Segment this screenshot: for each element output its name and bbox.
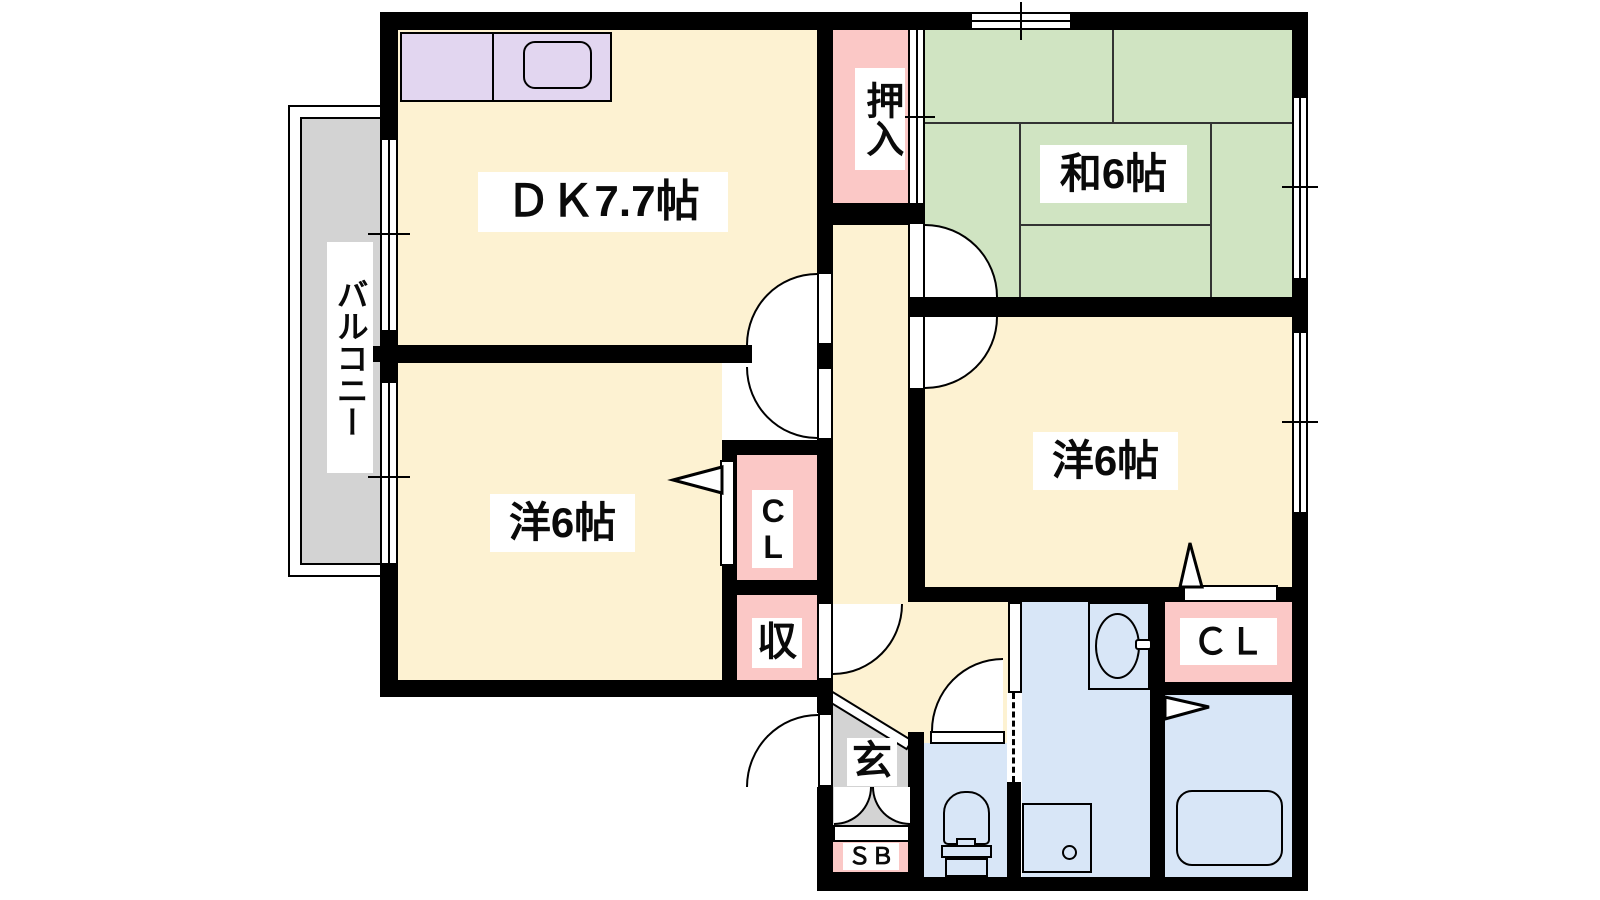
label-shoebox: ＳＢ	[843, 843, 899, 870]
label-cl-right: ＣＬ	[1180, 618, 1277, 665]
wall-miter	[1290, 877, 1308, 891]
label-balcony: バルコニー	[327, 242, 373, 473]
toilet-icon	[943, 791, 990, 845]
floor-plan: ＤＫ7.7帖 和6帖 洋6帖 洋6帖 押入 バルコニー CL 収 ＣＬ 玄 ＳＢ	[0, 0, 1600, 900]
closet-door-triangle	[1180, 543, 1202, 587]
bath-door-triangle	[1165, 697, 1209, 719]
room-label-youshitsu-right: 洋6帖	[1033, 432, 1178, 490]
kitchen-sink-icon	[523, 41, 592, 89]
vanity-basin-icon	[1095, 613, 1140, 679]
toilet-notch-icon	[956, 838, 976, 847]
closet-door-triangle	[673, 467, 722, 493]
wall-miter	[380, 12, 398, 30]
label-oshiire: 押入	[855, 68, 905, 170]
label-cl-left: CL	[752, 490, 793, 568]
washer-pan-icon	[1022, 803, 1092, 873]
washer-drain-icon	[1062, 845, 1077, 860]
vanity-faucet-icon	[1135, 639, 1152, 650]
toilet-base-icon	[945, 858, 988, 877]
room-label-youshitsu-left: 洋6帖	[490, 494, 635, 552]
label-shuunou: 収	[752, 618, 802, 668]
door-triangle-overlay	[0, 0, 1600, 900]
room-label-dk: ＤＫ7.7帖	[478, 172, 728, 232]
label-genkan: 玄	[847, 738, 897, 786]
room-label-washitsu: 和6帖	[1040, 145, 1187, 203]
bathtub-icon	[1176, 790, 1283, 866]
